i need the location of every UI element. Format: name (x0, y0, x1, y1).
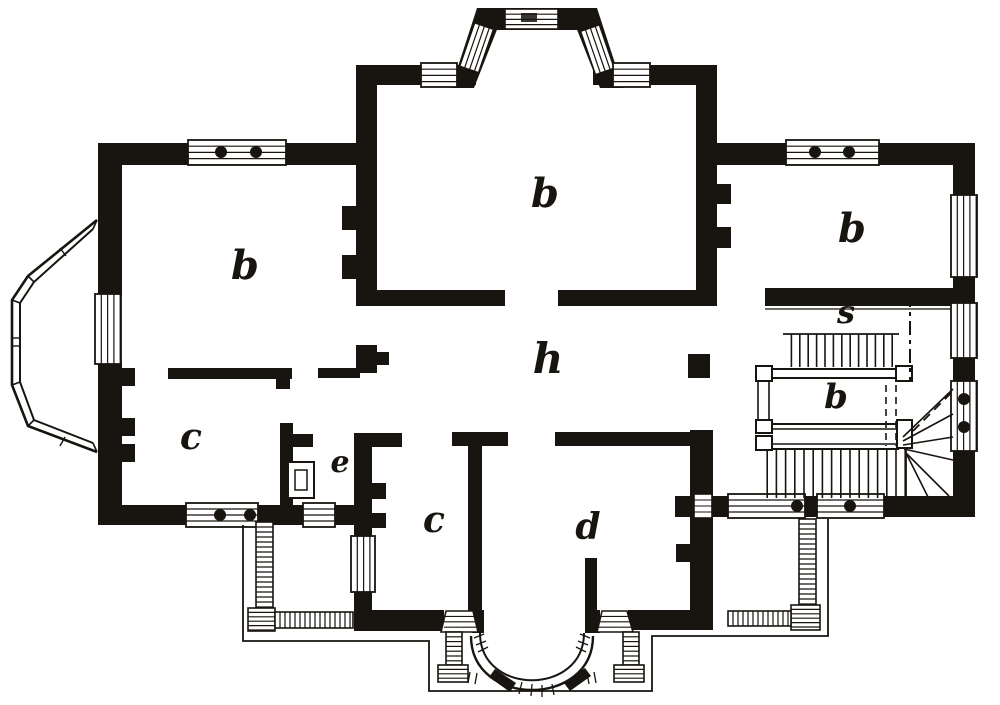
window (694, 494, 712, 518)
stair-upper-flight (791, 334, 892, 367)
room-label-stair-s: s (837, 296, 855, 328)
top-bay-window (451, 8, 623, 88)
closet-fixture (288, 462, 314, 498)
room-label-room-b-right: b (838, 209, 866, 249)
room-label-room-b-center: b (531, 174, 559, 214)
window (188, 140, 286, 165)
room-label-room-c-bottom: c (423, 502, 445, 538)
room-label-room-d: d (575, 509, 600, 545)
window-splayed (597, 611, 633, 632)
window (95, 294, 121, 364)
window (786, 140, 879, 165)
window (613, 63, 650, 87)
room-label-room-e: e (330, 448, 349, 478)
room-label-stair-landing-b: b (824, 380, 848, 414)
room-label-room-c-left: c (180, 419, 202, 455)
apse-arc-hatch (468, 634, 596, 697)
window-splayed (441, 611, 478, 632)
window (951, 303, 977, 358)
stair-lower-flight (767, 450, 905, 498)
floor-plan-drawing (0, 0, 1000, 705)
room-label-hall-h: h (533, 338, 564, 380)
terrace (243, 519, 828, 691)
octagon-bay-window (12, 220, 97, 452)
room-label-room-b-left: b (231, 246, 259, 286)
window (186, 503, 258, 527)
terrace-outline (243, 519, 828, 691)
floor-plan: bbbhsbcecd (0, 0, 1000, 705)
window (303, 503, 335, 527)
apse-bay (438, 632, 644, 697)
window (951, 381, 977, 451)
window (421, 63, 457, 87)
window (351, 536, 375, 592)
window (951, 195, 977, 277)
